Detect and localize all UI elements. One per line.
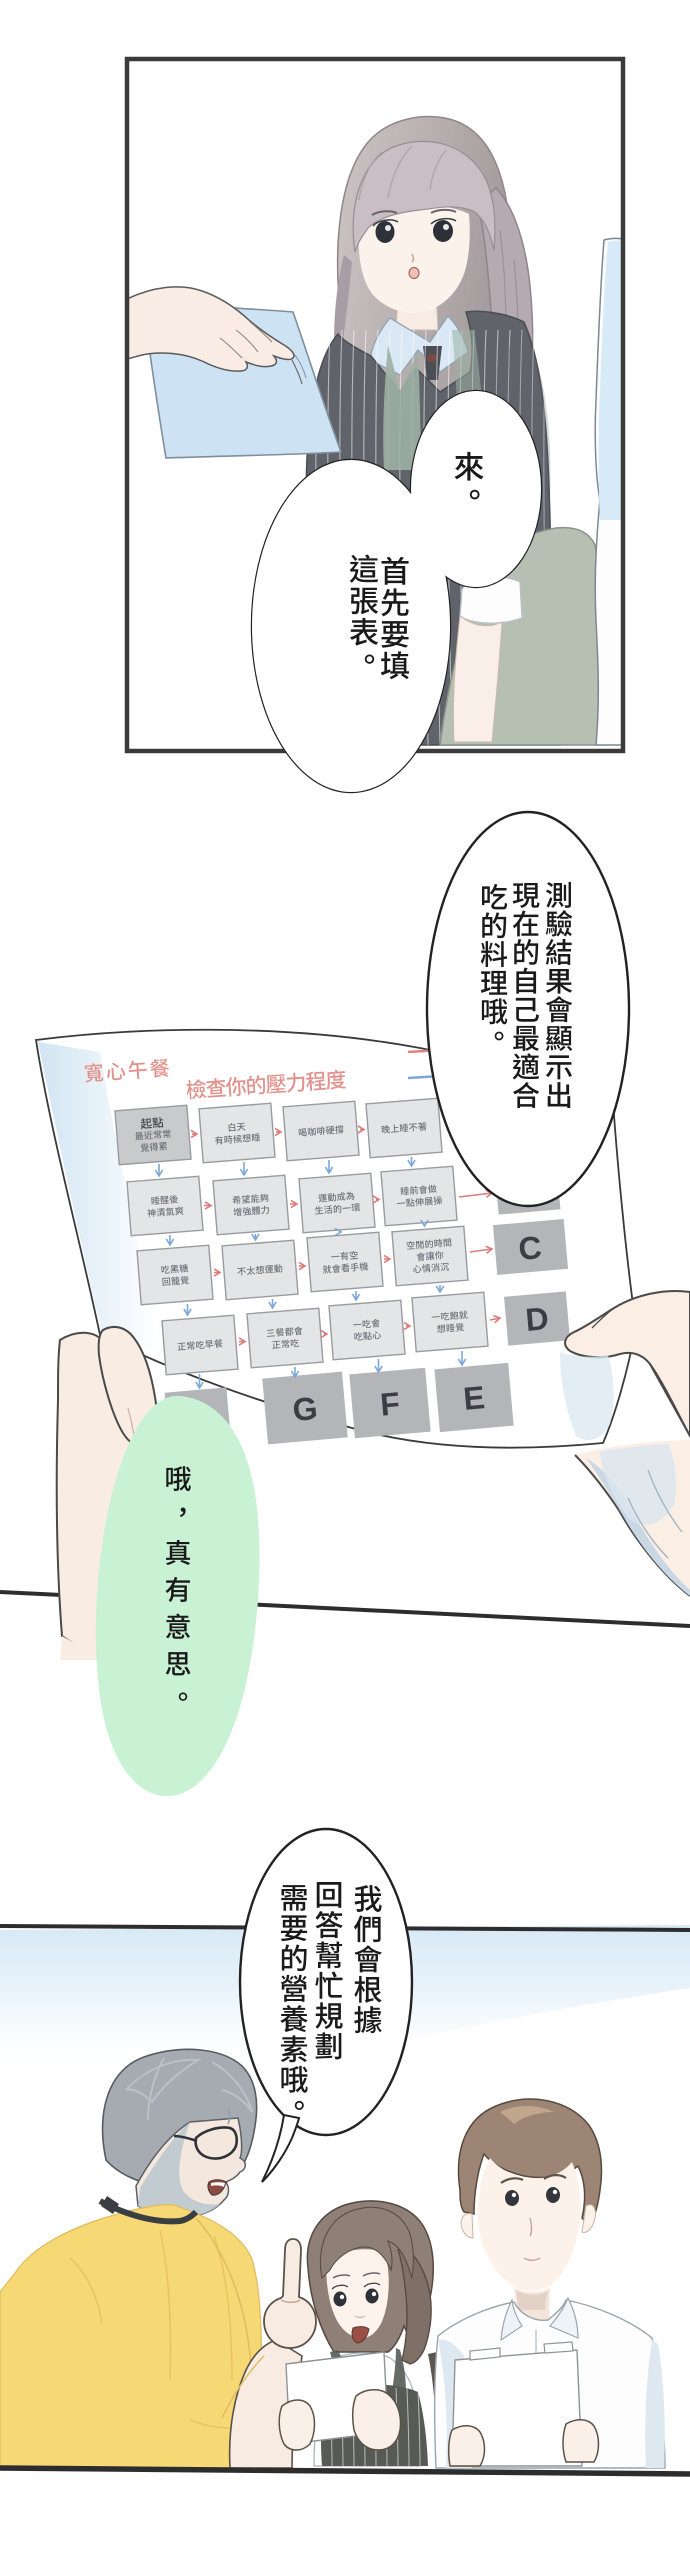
svg-text:D: D bbox=[524, 1300, 550, 1338]
svg-text:C: C bbox=[517, 1229, 543, 1267]
svg-text:F: F bbox=[379, 1385, 402, 1423]
svg-text:G: G bbox=[291, 1390, 319, 1428]
svg-text:E: E bbox=[462, 1379, 486, 1417]
